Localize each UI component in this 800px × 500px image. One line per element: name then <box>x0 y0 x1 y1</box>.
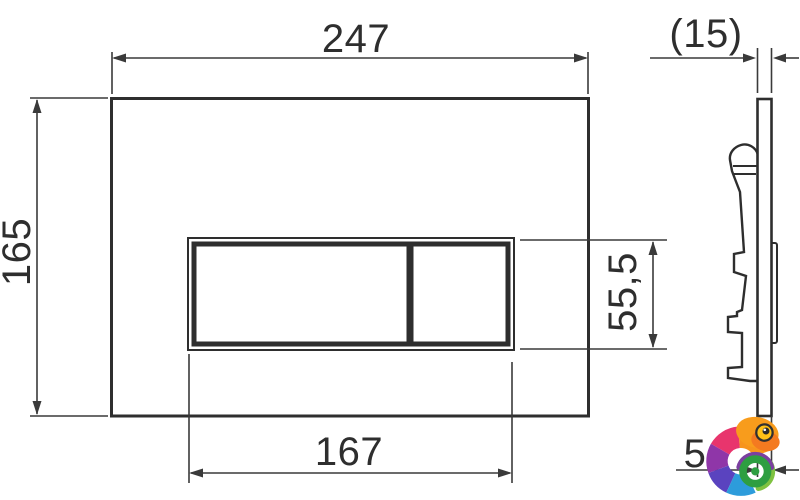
eye-pupil <box>763 428 770 435</box>
arrow-left <box>189 469 203 478</box>
arrow-right <box>498 469 512 478</box>
dim-label-button-width: 167 <box>315 432 383 472</box>
arrow-down <box>649 334 658 348</box>
arrow-right <box>574 54 588 63</box>
arrow-left <box>773 54 786 63</box>
arrow-up <box>33 99 42 113</box>
dim-label-height: 165 <box>0 218 37 286</box>
side-plate <box>758 99 772 416</box>
dim-label-button-height: 55,5 <box>603 252 643 332</box>
arrow-left <box>112 54 126 63</box>
eye-highlight <box>763 428 766 431</box>
arrow-up <box>649 241 658 255</box>
side-view <box>728 99 777 416</box>
dim-height-165 <box>30 98 108 416</box>
drawing-canvas <box>0 0 800 500</box>
plate-outline <box>112 99 589 417</box>
arrow-down <box>33 401 42 415</box>
dim-label-depth: (15) <box>669 14 742 54</box>
tail-center-dot <box>751 467 759 475</box>
side-clip-profile <box>728 144 758 381</box>
front-view <box>112 99 589 417</box>
technical-drawing-flush-plate: 247 165 167 55,5 (15) 5 <box>0 0 800 500</box>
arrow-right <box>743 54 756 63</box>
chameleon-logo-icon <box>696 405 790 500</box>
dim-label-width: 247 <box>322 19 390 59</box>
